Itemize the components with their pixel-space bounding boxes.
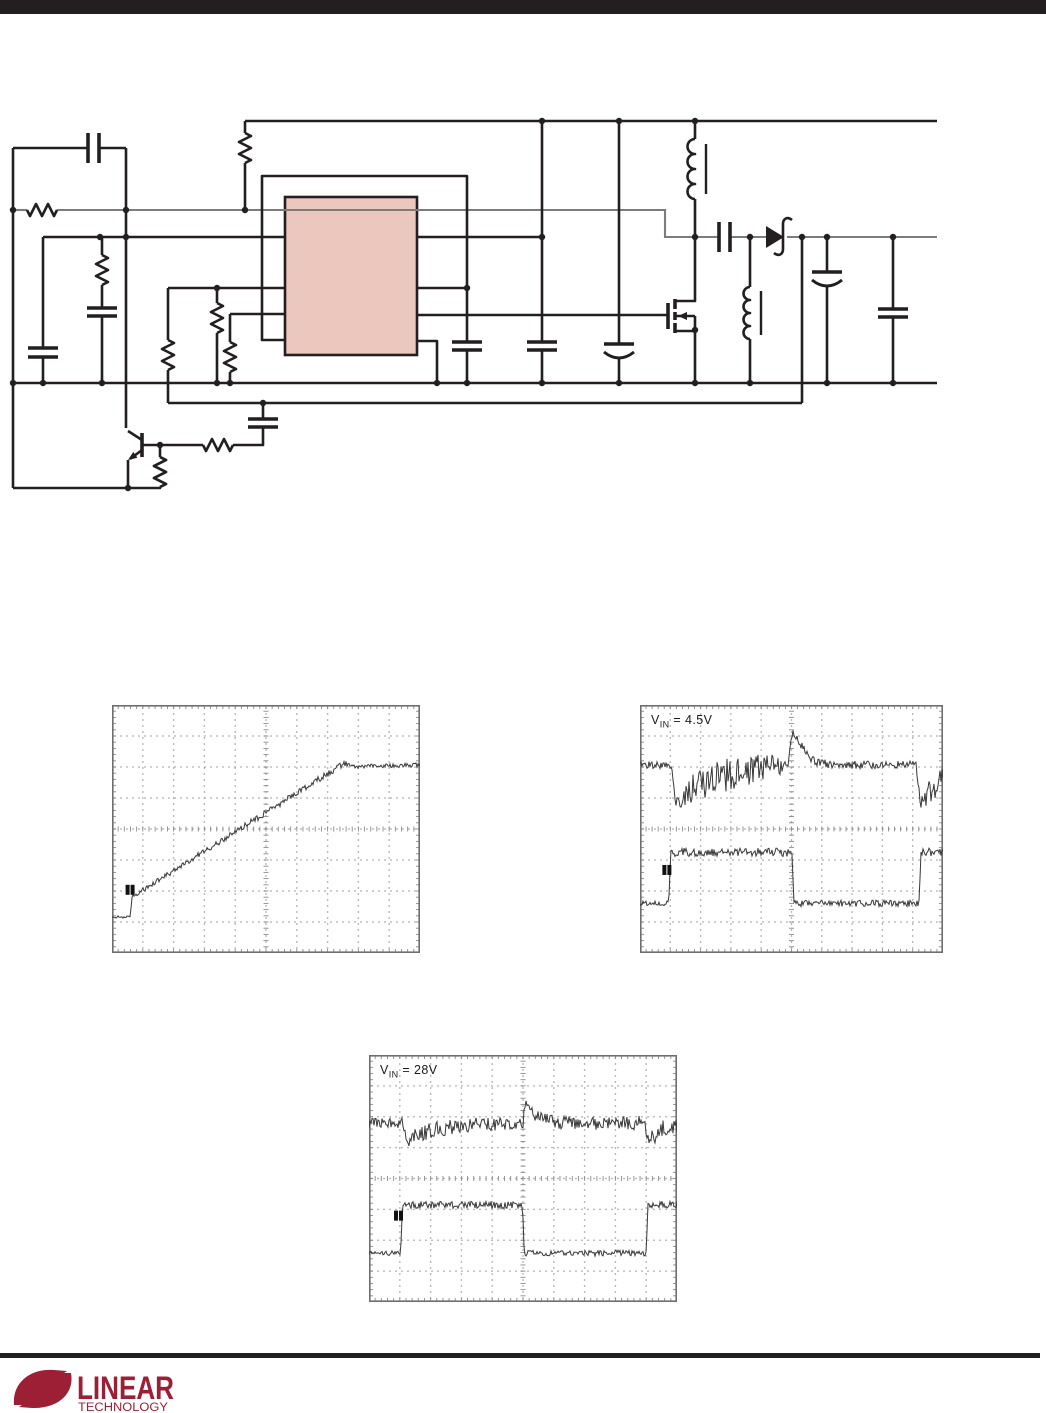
trigger-marker <box>394 1211 403 1221</box>
lt-mark-icon <box>14 1370 72 1408</box>
oscilloscope-vin-28v: VIN = 28V <box>369 1055 677 1302</box>
scope-label-vin-28v: VIN = 28V <box>380 1063 437 1080</box>
highlighted-net <box>13 210 937 237</box>
logo-brand-text: LINEAR <box>77 1370 174 1406</box>
scope-label-vin-4v5: VIN = 4.5V <box>651 713 712 730</box>
ic-block <box>285 197 417 355</box>
schematic-wires <box>13 121 937 488</box>
trace-output-voltage <box>369 1101 677 1146</box>
component-arcs <box>604 144 842 358</box>
scope-graticule <box>369 1055 677 1302</box>
logo-sub-text: TECHNOLOGY <box>78 1402 168 1413</box>
bottom-rule <box>0 1353 1040 1358</box>
center-axes <box>112 705 420 953</box>
oscilloscope-soft-start <box>112 705 420 953</box>
datasheet-page: VIN = 4.5V VIN = 28V LINEAR TECHNOLOGY <box>0 0 1046 1413</box>
linear-technology-logo: LINEAR TECHNOLOGY <box>6 1363 191 1413</box>
grid-dots <box>642 707 937 948</box>
trigger-marker <box>662 865 671 875</box>
application-schematic <box>0 0 1046 560</box>
trace-load-current-step <box>640 848 943 906</box>
center-axes <box>369 1055 677 1302</box>
scope-graticule <box>112 705 420 953</box>
trigger-marker <box>126 885 135 895</box>
scope-graticule <box>640 705 943 953</box>
oscilloscope-vin-4v5: VIN = 4.5V <box>640 705 943 953</box>
